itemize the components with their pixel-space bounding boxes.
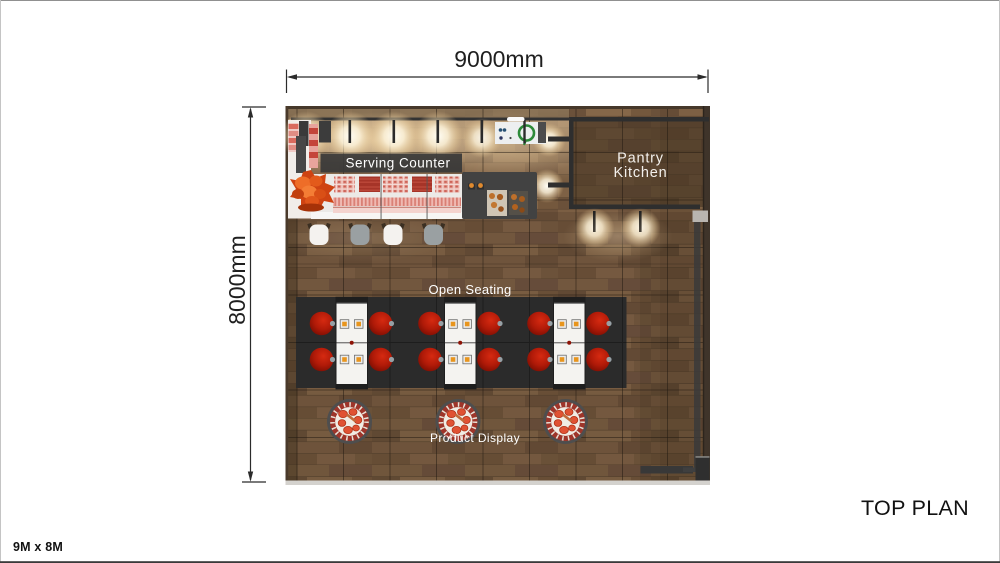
svg-text:9M x 8M: 9M x 8M xyxy=(13,540,63,554)
svg-text:TOP PLAN: TOP PLAN xyxy=(861,496,969,520)
svg-text:Open Seating: Open Seating xyxy=(428,282,511,297)
svg-text:9000mm: 9000mm xyxy=(454,46,543,72)
svg-text:Product Display: Product Display xyxy=(430,431,520,445)
svg-text:8000mm: 8000mm xyxy=(224,235,250,324)
svg-text:Serving Counter: Serving Counter xyxy=(345,156,450,171)
svg-text:Kitchen: Kitchen xyxy=(614,165,668,181)
